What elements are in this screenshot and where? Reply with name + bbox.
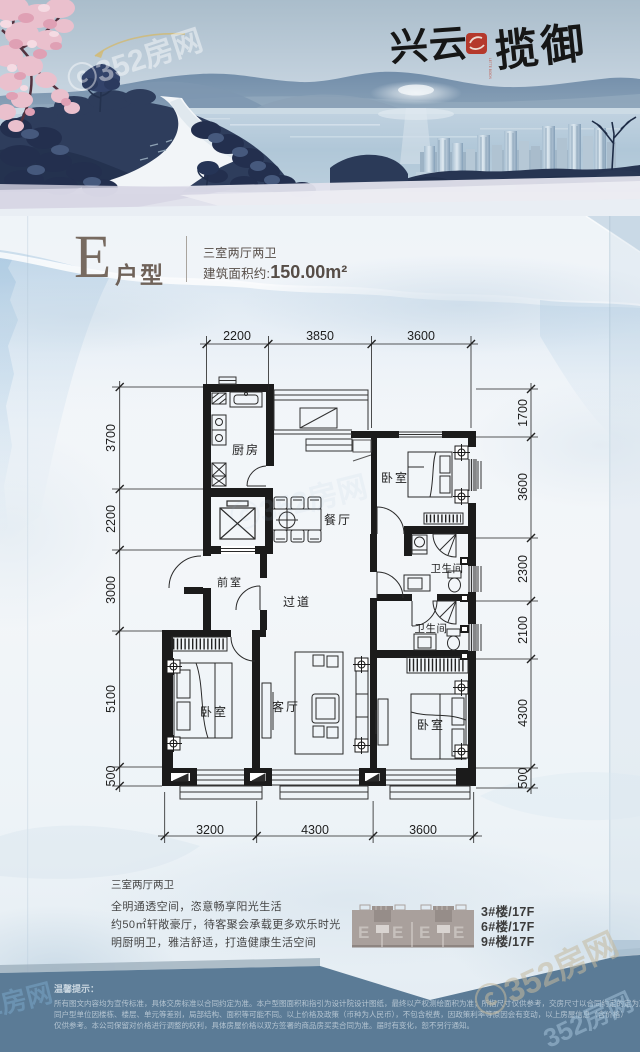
svg-text:500: 500 [516,768,530,789]
svg-text:卧室: 卧室 [381,470,409,485]
svg-text:3600: 3600 [516,473,530,501]
svg-text:客厅: 客厅 [272,699,300,714]
svg-text:2200: 2200 [223,329,251,343]
svg-text:厨房: 厨房 [232,442,260,457]
svg-text:4300: 4300 [516,699,530,727]
svg-text:过道: 过道 [283,595,311,609]
svg-text:2300: 2300 [516,555,530,583]
svg-text:同户型单位因楼栋、楼层、单元等差别，局部结构、面积等可能不同: 同户型单位因楼栋、楼层、单元等差别，局部结构、面积等可能不同。以上价格及政策（币… [54,1009,628,1019]
svg-text:1700: 1700 [516,399,530,427]
svg-text:2200: 2200 [104,505,118,533]
svg-text:仅供参考。本公司保留对价格进行调整的权利，具体房屋价格以双方: 仅供参考。本公司保留对价格进行调整的权利，具体房屋价格以双方签署的商品房买卖合同… [54,1020,474,1030]
svg-text:前室: 前室 [217,575,243,589]
svg-text:餐厅: 餐厅 [324,512,352,527]
svg-text:3700: 3700 [104,424,118,452]
svg-text:3850: 3850 [306,329,334,343]
svg-text:所有图文内容均为宣传标准，具体交房标准以合同约定为准。本户型: 所有图文内容均为宣传标准，具体交房标准以合同约定为准。本户型图面积和指引为设计院… [54,998,640,1008]
svg-text:温馨提示：: 温馨提示： [54,983,99,994]
svg-text:卫生间: 卫生间 [415,622,448,635]
svg-text:卧室: 卧室 [417,717,445,732]
svg-text:卫生间: 卫生间 [431,562,464,575]
svg-text:500: 500 [104,766,118,787]
svg-text:3200: 3200 [196,823,224,837]
svg-text:3600: 3600 [407,329,435,343]
svg-text:4300: 4300 [301,823,329,837]
svg-text:5100: 5100 [104,685,118,713]
svg-text:卧室: 卧室 [200,704,228,719]
svg-text:3000: 3000 [104,576,118,604]
svg-text:3600: 3600 [409,823,437,837]
svg-text:2100: 2100 [516,616,530,644]
